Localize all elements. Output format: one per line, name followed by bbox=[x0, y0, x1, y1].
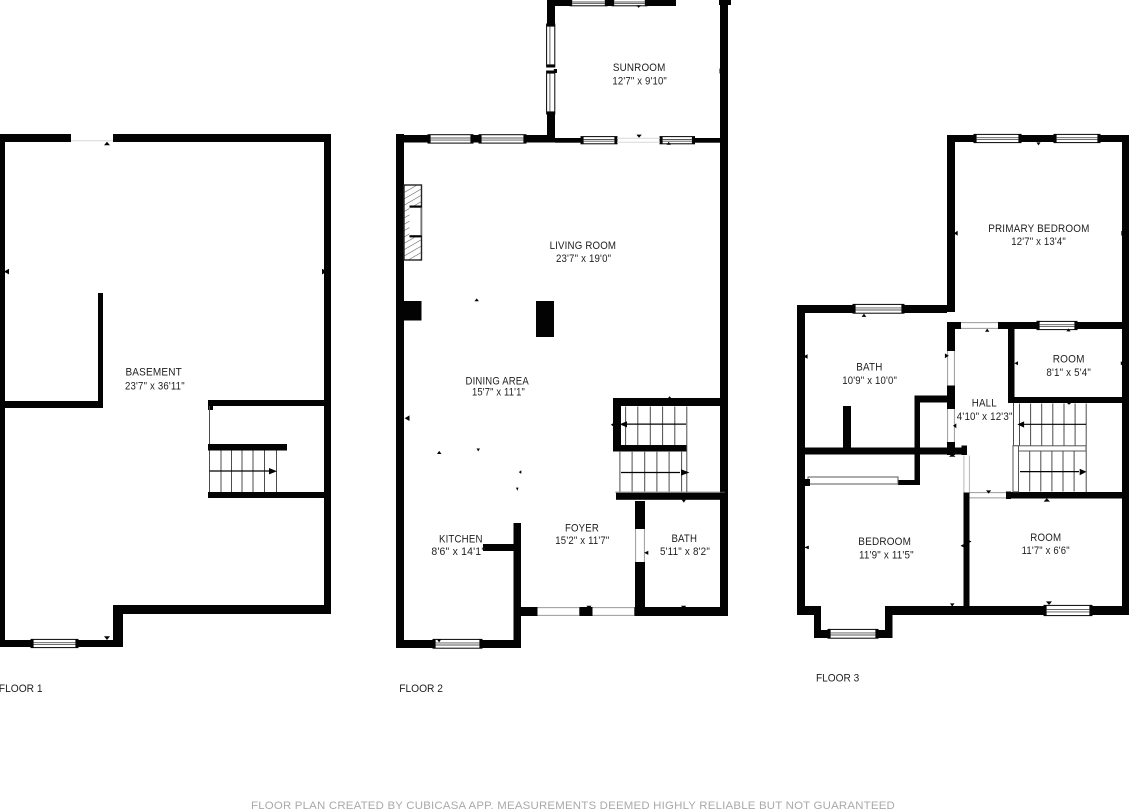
svg-text:FOYER: FOYER bbox=[565, 523, 599, 535]
svg-text:PRIMARY BEDROOM: PRIMARY BEDROOM bbox=[988, 223, 1089, 235]
svg-text:11'9" x 11'5": 11'9" x 11'5" bbox=[859, 550, 914, 562]
svg-text:10'9" x 10'0": 10'9" x 10'0" bbox=[842, 375, 897, 387]
svg-text:ROOM: ROOM bbox=[1030, 532, 1061, 544]
svg-text:FLOOR PLAN CREATED BY CUBICASA: FLOOR PLAN CREATED BY CUBICASA APP. MEAS… bbox=[251, 800, 895, 809]
svg-text:11'7" x 6'6": 11'7" x 6'6" bbox=[1022, 545, 1070, 557]
svg-text:5'11" x 8'2": 5'11" x 8'2" bbox=[660, 546, 710, 558]
svg-text:BEDROOM: BEDROOM bbox=[858, 536, 911, 548]
svg-text:FLOOR 3: FLOOR 3 bbox=[816, 672, 859, 684]
svg-text:KITCHEN: KITCHEN bbox=[439, 533, 483, 545]
svg-text:BASEMENT: BASEMENT bbox=[125, 366, 182, 378]
svg-text:FLOOR 1: FLOOR 1 bbox=[0, 683, 43, 695]
svg-text:4'10" x 12'3": 4'10" x 12'3" bbox=[957, 411, 1013, 423]
svg-text:12'7" x 9'10": 12'7" x 9'10" bbox=[612, 75, 667, 87]
svg-text:SUNROOM: SUNROOM bbox=[613, 62, 666, 74]
svg-text:23'7" x 19'0": 23'7" x 19'0" bbox=[556, 253, 611, 265]
svg-text:BATH: BATH bbox=[856, 362, 882, 374]
svg-text:8'6" x 14'1": 8'6" x 14'1" bbox=[431, 546, 485, 558]
svg-text:LIVING ROOM: LIVING ROOM bbox=[550, 240, 617, 252]
svg-text:8'1" x 5'4": 8'1" x 5'4" bbox=[1046, 367, 1091, 379]
svg-text:HALL: HALL bbox=[972, 397, 997, 409]
svg-text:BATH: BATH bbox=[671, 533, 697, 545]
svg-text:23'7" x 36'11": 23'7" x 36'11" bbox=[125, 381, 185, 393]
svg-text:12'7" x 13'4": 12'7" x 13'4" bbox=[1011, 236, 1066, 248]
svg-text:ROOM: ROOM bbox=[1053, 354, 1085, 366]
svg-text:15'7" x 11'1": 15'7" x 11'1" bbox=[472, 387, 525, 399]
svg-text:FLOOR 2: FLOOR 2 bbox=[399, 683, 443, 695]
svg-text:15'2" x 11'7": 15'2" x 11'7" bbox=[555, 535, 609, 547]
